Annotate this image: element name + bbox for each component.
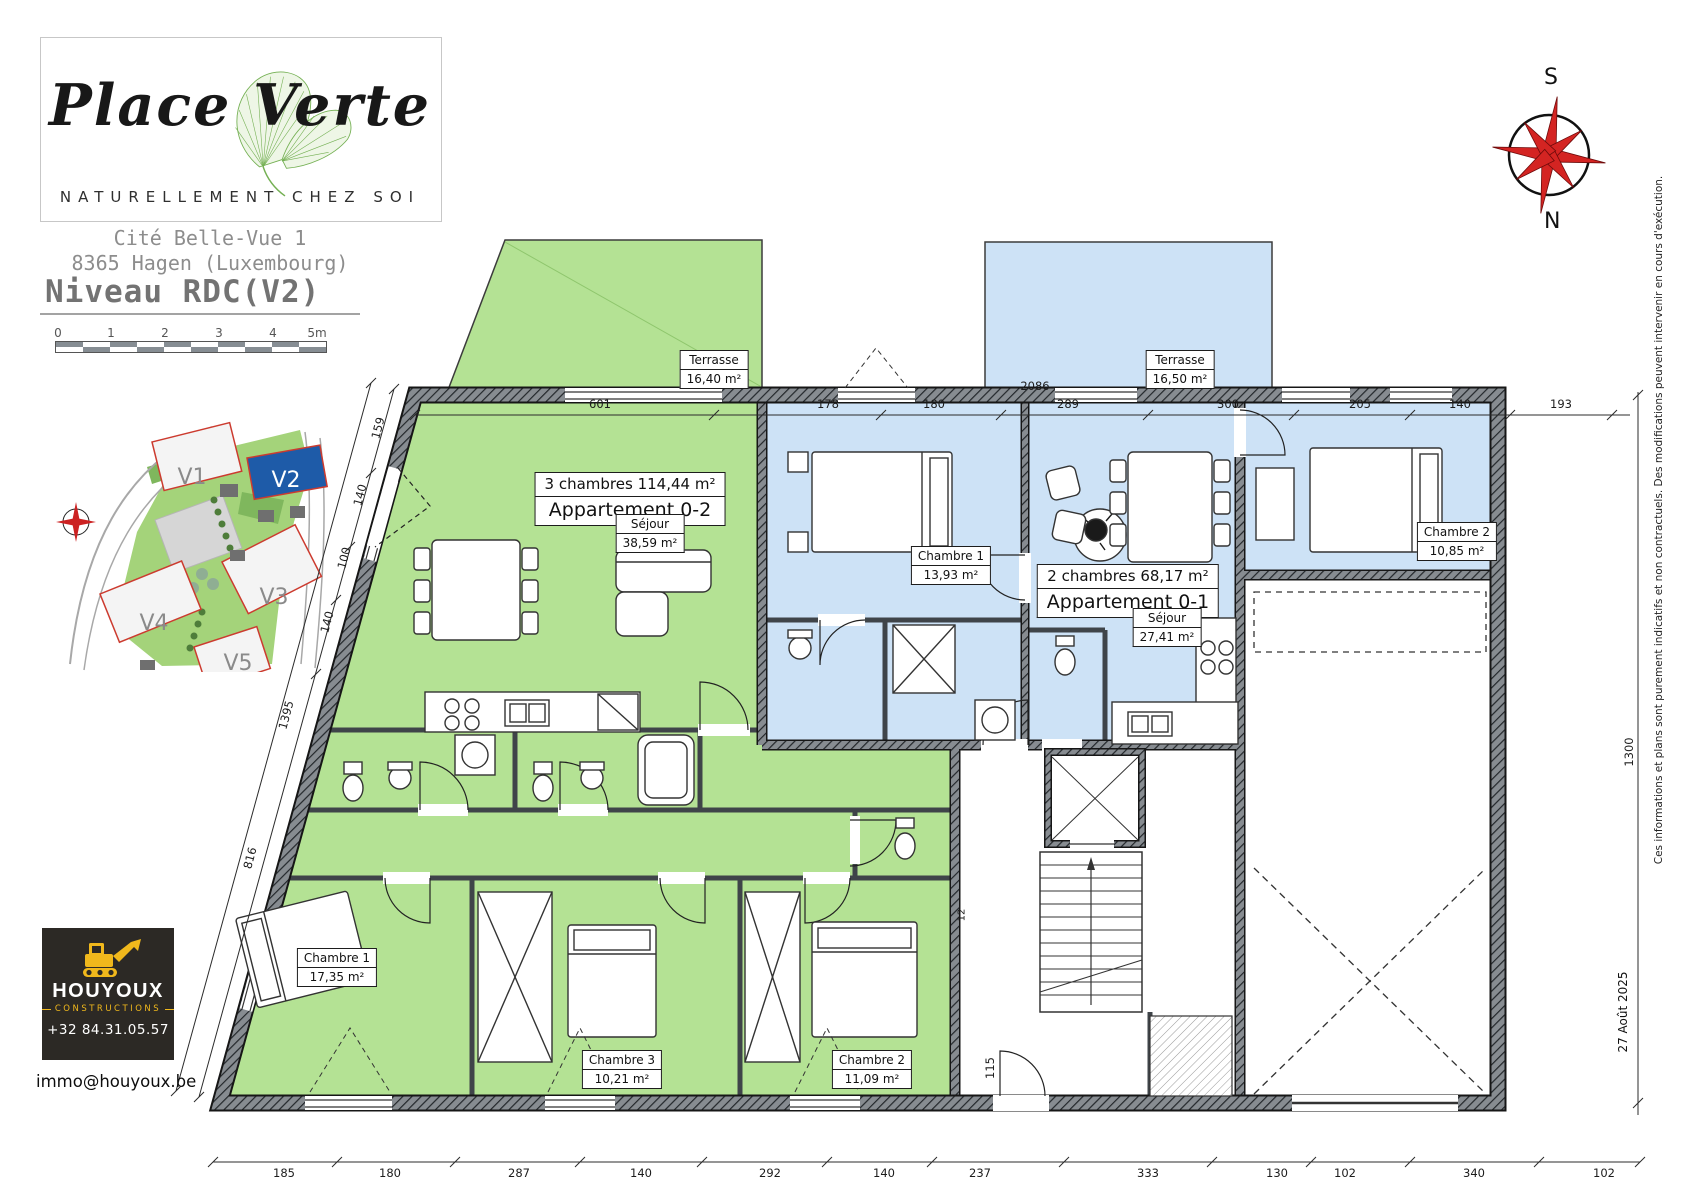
- room-area: 10,85 m²: [1417, 542, 1497, 561]
- room-label-chambre1-0-2: Chambre 1 17,35 m²: [297, 948, 377, 987]
- dimension-stair: 12: [957, 909, 968, 922]
- room-name: Séjour: [1133, 608, 1202, 628]
- terrace-label-0-1: Terrasse 16,50 m²: [1146, 350, 1215, 389]
- dimension-bottom: 180: [379, 1166, 401, 1180]
- dimension-top: 193: [1550, 397, 1572, 411]
- accent-bar: [42, 1009, 51, 1010]
- dimension-bottom: 237: [969, 1166, 991, 1180]
- dimension-bottom: 102: [1593, 1166, 1615, 1180]
- builder-logo-block: HOUYOUX CONSTRUCTIONS +32 84.31.05.57: [42, 928, 174, 1060]
- stairwell: [1040, 752, 1232, 1096]
- builder-name: HOUYOUX: [42, 980, 174, 1003]
- accent-bar: [165, 1009, 174, 1010]
- dimension-top: 205: [1349, 397, 1371, 411]
- room-area: 17,35 m²: [297, 968, 377, 987]
- floor-plan-sheet: Place Verte NATURELLEMENT CHEZ SOI Cité …: [0, 0, 1697, 1200]
- dimension-bottom: 130: [1266, 1166, 1288, 1180]
- dimension-bottom: 292: [759, 1166, 781, 1180]
- room-label-chambre2-0-2: Chambre 2 11,09 m²: [832, 1050, 912, 1089]
- logo-title: Place Verte: [40, 72, 440, 139]
- logo-subtitle: NATURELLEMENT CHEZ SOI: [40, 188, 440, 206]
- disclaimer-text: Ces informations et plans sont purement …: [1653, 176, 1665, 865]
- terrace-apartment-0-1: [985, 242, 1272, 390]
- builder-email: immo@houyoux.be: [36, 1072, 196, 1091]
- dimension-top: 289: [1057, 397, 1079, 411]
- dimension-bottom: 140: [873, 1166, 895, 1180]
- terrace-name: Terrasse: [680, 350, 749, 370]
- dimension-bottom: 140: [630, 1166, 652, 1180]
- garage: [1254, 592, 1486, 1094]
- apartment-0-2-rooms-area: 3 chambres 114,44 m²: [535, 472, 726, 497]
- room-area: 10,21 m²: [582, 1070, 662, 1089]
- dimension-top: 180: [923, 397, 945, 411]
- builder-phone: +32 84.31.05.57: [42, 1022, 174, 1038]
- room-name: Chambre 2: [832, 1050, 912, 1070]
- room-name: Chambre 2: [1417, 522, 1497, 542]
- dimension-top: 601: [589, 397, 611, 411]
- dimension-bottom: 102: [1334, 1166, 1356, 1180]
- terrace-label-0-2: Terrasse 16,40 m²: [680, 350, 749, 389]
- builder-subtitle: CONSTRUCTIONS: [55, 1004, 161, 1014]
- room-label-sejour-0-2: Séjour 38,59 m²: [616, 514, 685, 553]
- room-area: 38,59 m²: [616, 534, 685, 553]
- room-area: 13,93 m²: [911, 566, 991, 585]
- room-name: Chambre 3: [582, 1050, 662, 1070]
- room-label-chambre3-0-2: Chambre 3 10,21 m²: [582, 1050, 662, 1089]
- room-label-chambre1-0-1: Chambre 1 13,93 m²: [911, 546, 991, 585]
- room-name: Séjour: [616, 514, 685, 534]
- dimension-top: 140: [1449, 397, 1471, 411]
- dimension-bottom: 333: [1137, 1166, 1159, 1180]
- dimension-entry: 115: [983, 1057, 997, 1079]
- terrace-area: 16,50 m²: [1146, 370, 1215, 389]
- room-label-sejour-0-1: Séjour 27,41 m²: [1133, 608, 1202, 647]
- terrace-area: 16,40 m²: [680, 370, 749, 389]
- dimension-right: 1300: [1622, 737, 1636, 766]
- terrace-name: Terrasse: [1146, 350, 1215, 370]
- dimension-top: 178: [817, 397, 839, 411]
- dimension-top: 300: [1217, 397, 1239, 411]
- room-name: Chambre 1: [911, 546, 991, 566]
- apartment-0-1-rooms-area: 2 chambres 68,17 m²: [1037, 564, 1219, 589]
- dimension-bottom: 340: [1463, 1166, 1485, 1180]
- room-area: 27,41 m²: [1133, 628, 1202, 647]
- excavator-icon: [71, 936, 145, 980]
- dimension-bottom: 287: [508, 1166, 530, 1180]
- room-name: Chambre 1: [297, 948, 377, 968]
- dimension-overall-top: 2086: [1020, 379, 1049, 393]
- room-label-chambre2-0-1: Chambre 2 10,85 m²: [1417, 522, 1497, 561]
- plan-date: 27 Août 2025: [1616, 971, 1630, 1052]
- dimension-bottom: 185: [273, 1166, 295, 1180]
- room-area: 11,09 m²: [832, 1070, 912, 1089]
